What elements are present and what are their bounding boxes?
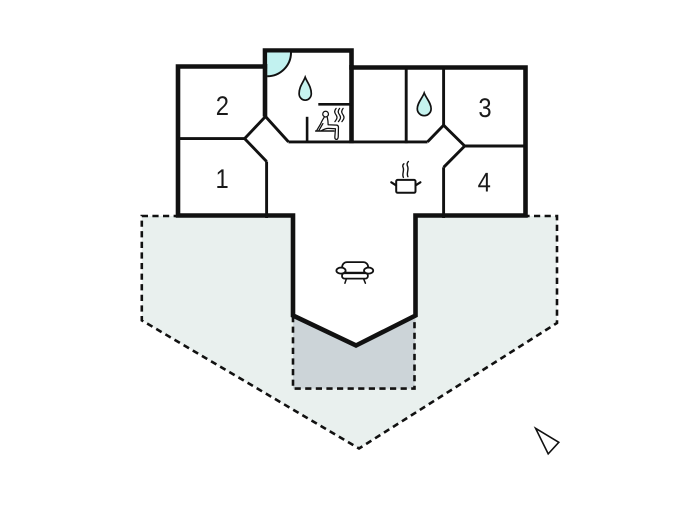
svg-text:4: 4 (478, 168, 491, 198)
svg-text:2: 2 (216, 91, 229, 121)
svg-text:1: 1 (215, 164, 228, 194)
svg-text:3: 3 (478, 93, 491, 123)
